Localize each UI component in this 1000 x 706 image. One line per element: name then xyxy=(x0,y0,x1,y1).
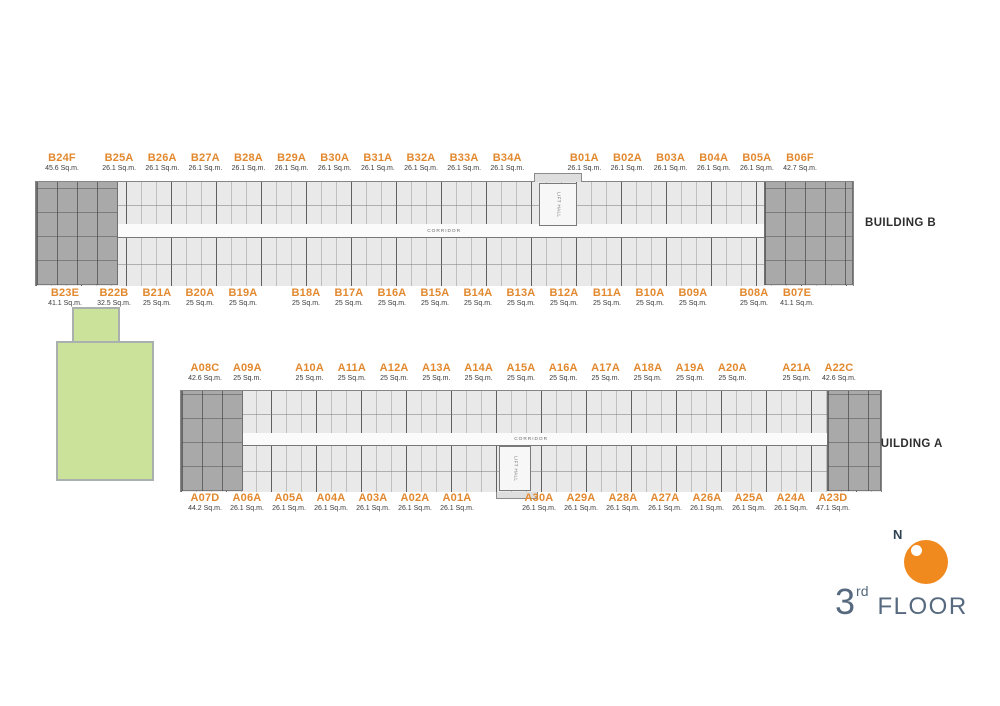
unit-label-B15A: B15A25 Sq.m. xyxy=(418,287,452,307)
unit-label-B11A: B11A25 Sq.m. xyxy=(590,287,624,307)
unit-label-B06F: B06F42.7 Sq.m. xyxy=(783,152,817,172)
unit-label-B34A: B34A26.1 Sq.m. xyxy=(490,152,524,172)
unit-label-A12A: A12A25 Sq.m. xyxy=(377,362,411,382)
unit-label-A16A: A16A25 Sq.m. xyxy=(546,362,580,382)
unit-name: A04A xyxy=(317,492,346,504)
unit-area: 32.5 Sq.m. xyxy=(97,300,131,307)
unit-name: A16A xyxy=(549,362,578,374)
unit-label-B02A: B02A26.1 Sq.m. xyxy=(611,152,645,172)
unit-name: B01A xyxy=(570,152,599,164)
unit-label-A02A: A02A26.1 Sq.m. xyxy=(398,492,432,512)
unit-area: 25 Sq.m. xyxy=(718,375,746,382)
unit-area: 42.6 Sq.m. xyxy=(822,375,856,382)
unit-name: B25A xyxy=(105,152,134,164)
unit-label-B26A: B26A26.1 Sq.m. xyxy=(145,152,179,172)
unit-name: A28A xyxy=(609,492,638,504)
unit-label-B21A: B21A25 Sq.m. xyxy=(140,287,174,307)
unit-area: 25 Sq.m. xyxy=(233,375,261,382)
unit-area: 25 Sq.m. xyxy=(507,300,535,307)
unit-name: B14A xyxy=(464,287,493,299)
unit-area: 26.1 Sq.m. xyxy=(564,505,598,512)
unit-area: 25 Sq.m. xyxy=(378,300,406,307)
unit-area: 42.7 Sq.m. xyxy=(783,165,817,172)
floor-ordinal: rd xyxy=(856,583,868,599)
unit-name: A03A xyxy=(359,492,388,504)
unit-name: B28A xyxy=(234,152,263,164)
unit-label-A18A: A18A25 Sq.m. xyxy=(631,362,665,382)
unit-name: B13A xyxy=(507,287,536,299)
unit-area: 26.1 Sq.m. xyxy=(314,505,348,512)
unit-label-A20A: A20A25 Sq.m. xyxy=(715,362,749,382)
unit-label-B13A: B13A25 Sq.m. xyxy=(504,287,538,307)
unit-label-B32A: B32A26.1 Sq.m. xyxy=(404,152,438,172)
unit-name: B22B xyxy=(100,287,129,299)
unit-area: 26.1 Sq.m. xyxy=(606,505,640,512)
unit-label-B09A: B09A25 Sq.m. xyxy=(676,287,710,307)
unit-name: B34A xyxy=(493,152,522,164)
unit-area: 25 Sq.m. xyxy=(464,300,492,307)
unit-label-A25A: A25A26.1 Sq.m. xyxy=(732,492,766,512)
building-b-lift-hall-label: LIFT HALL xyxy=(556,192,561,217)
building-b-corridor: CORRIDOR xyxy=(36,224,853,237)
unit-area: 25 Sq.m. xyxy=(335,300,363,307)
building-a-lift-hall: LIFT HALL xyxy=(499,446,531,491)
unit-area: 25 Sq.m. xyxy=(550,300,578,307)
building-b-name: BUILDING B xyxy=(865,217,936,229)
unit-area: 26.1 Sq.m. xyxy=(404,165,438,172)
building-b-upper-units-row xyxy=(36,182,853,225)
unit-label-B10A: B10A25 Sq.m. xyxy=(633,287,667,307)
unit-label-B16A: B16A25 Sq.m. xyxy=(375,287,409,307)
unit-label-B31A: B31A26.1 Sq.m. xyxy=(361,152,395,172)
unit-name: A25A xyxy=(735,492,764,504)
unit-area: 26.1 Sq.m. xyxy=(318,165,352,172)
unit-name: B04A xyxy=(699,152,728,164)
unit-area: 41.1 Sq.m. xyxy=(780,300,814,307)
unit-area: 26.1 Sq.m. xyxy=(611,165,645,172)
unit-area: 25 Sq.m. xyxy=(507,375,535,382)
building-b-left-endcap xyxy=(36,182,118,285)
unit-name: A02A xyxy=(401,492,430,504)
unit-name: B12A xyxy=(550,287,579,299)
unit-area: 26.1 Sq.m. xyxy=(490,165,524,172)
unit-area: 26.1 Sq.m. xyxy=(272,505,306,512)
unit-name: B31A xyxy=(363,152,392,164)
green-area-main-block xyxy=(56,341,154,481)
unit-area: 26.1 Sq.m. xyxy=(740,165,774,172)
unit-label-A23D: A23D47.1 Sq.m. xyxy=(816,492,850,512)
building-a-top-unit-labels: A08C42.6 Sq.m.A09A25 Sq.m.A10A25 Sq.m.A1… xyxy=(188,362,856,382)
unit-area: 25 Sq.m. xyxy=(740,300,768,307)
unit-area: 26.1 Sq.m. xyxy=(648,505,682,512)
unit-area: 47.1 Sq.m. xyxy=(816,505,850,512)
unit-area: 25 Sq.m. xyxy=(783,375,811,382)
unit-label-A03A: A03A26.1 Sq.m. xyxy=(356,492,390,512)
unit-label-A19A: A19A25 Sq.m. xyxy=(673,362,707,382)
unit-area: 25 Sq.m. xyxy=(636,300,664,307)
unit-area: 26.1 Sq.m. xyxy=(398,505,432,512)
unit-name: A07D xyxy=(191,492,220,504)
unit-label-A06A: A06A26.1 Sq.m. xyxy=(230,492,264,512)
unit-area: 25 Sq.m. xyxy=(421,300,449,307)
unit-area: 26.1 Sq.m. xyxy=(188,165,222,172)
unit-name: A20A xyxy=(718,362,747,374)
building-a-bottom-unit-labels: A07D44.2 Sq.m.A06A26.1 Sq.m.A05A26.1 Sq.… xyxy=(188,492,850,512)
unit-area: 25 Sq.m. xyxy=(186,300,214,307)
unit-name: A05A xyxy=(275,492,304,504)
unit-name: B08A xyxy=(740,287,769,299)
unit-area: 25 Sq.m. xyxy=(422,375,450,382)
unit-name: A17A xyxy=(591,362,620,374)
floor-plan-canvas: B24F45.6 Sq.m.B25A26.1 Sq.m.B26A26.1 Sq.… xyxy=(0,0,1000,706)
unit-label-A15A: A15A25 Sq.m. xyxy=(504,362,538,382)
floor-title: 3rdFLOOR xyxy=(835,583,968,621)
unit-name: A22C xyxy=(824,362,853,374)
unit-label-B20A: B20A25 Sq.m. xyxy=(183,287,217,307)
unit-area: 42.6 Sq.m. xyxy=(188,375,222,382)
unit-label-B24F: B24F45.6 Sq.m. xyxy=(45,152,79,172)
unit-area: 26.1 Sq.m. xyxy=(356,505,390,512)
unit-label-B28A: B28A26.1 Sq.m. xyxy=(232,152,266,172)
unit-name: A10A xyxy=(295,362,324,374)
unit-label-B25A: B25A26.1 Sq.m. xyxy=(102,152,136,172)
unit-area: 26.1 Sq.m. xyxy=(654,165,688,172)
unit-label-A13A: A13A25 Sq.m. xyxy=(419,362,453,382)
unit-label-B08A: B08A25 Sq.m. xyxy=(737,287,771,307)
building-a-upper-units-row xyxy=(181,391,881,434)
unit-label-A28A: A28A26.1 Sq.m. xyxy=(606,492,640,512)
unit-name: A06A xyxy=(233,492,262,504)
unit-name: B30A xyxy=(320,152,349,164)
building-a-corridor-label: CORRIDOR xyxy=(514,437,548,442)
unit-label-B07E: B07E41.1 Sq.m. xyxy=(780,287,814,307)
building-a-name: BUILDING A xyxy=(872,438,943,450)
unit-label-A30A: A30A26.1 Sq.m. xyxy=(522,492,556,512)
unit-area: 26.1 Sq.m. xyxy=(690,505,724,512)
unit-name: B10A xyxy=(636,287,665,299)
unit-name: A19A xyxy=(676,362,705,374)
unit-area: 26.1 Sq.m. xyxy=(232,165,266,172)
unit-label-B19A: B19A25 Sq.m. xyxy=(226,287,260,307)
unit-label-B18A: B18A25 Sq.m. xyxy=(289,287,323,307)
unit-name: B29A xyxy=(277,152,306,164)
unit-name: B02A xyxy=(613,152,642,164)
unit-area: 25 Sq.m. xyxy=(229,300,257,307)
unit-label-A11A: A11A25 Sq.m. xyxy=(335,362,369,382)
unit-name: A11A xyxy=(338,362,366,374)
unit-name: A29A xyxy=(567,492,596,504)
building-a-corridor: CORRIDOR xyxy=(181,433,881,445)
unit-label-B12A: B12A25 Sq.m. xyxy=(547,287,581,307)
building-b-lift-hall: LIFT HALL xyxy=(539,183,577,226)
unit-name: A27A xyxy=(651,492,680,504)
unit-name: B20A xyxy=(186,287,215,299)
unit-name: A08C xyxy=(191,362,220,374)
unit-name: B06F xyxy=(786,152,814,164)
unit-name: A18A xyxy=(633,362,662,374)
unit-name: A09A xyxy=(233,362,262,374)
unit-name: B17A xyxy=(335,287,364,299)
unit-name: B18A xyxy=(292,287,321,299)
unit-area: 41.1 Sq.m. xyxy=(48,300,82,307)
unit-name: A21A xyxy=(782,362,811,374)
unit-name: A23D xyxy=(819,492,848,504)
unit-label-B01A: B01A26.1 Sq.m. xyxy=(567,152,601,172)
unit-area: 25 Sq.m. xyxy=(143,300,171,307)
unit-name: B16A xyxy=(378,287,407,299)
unit-label-A01A: A01A26.1 Sq.m. xyxy=(440,492,474,512)
unit-label-A29A: A29A26.1 Sq.m. xyxy=(564,492,598,512)
unit-label-B29A: B29A26.1 Sq.m. xyxy=(275,152,309,172)
unit-label-A24A: A24A26.1 Sq.m. xyxy=(774,492,808,512)
unit-name: A14A xyxy=(464,362,493,374)
unit-label-A10A: A10A25 Sq.m. xyxy=(293,362,327,382)
unit-label-A07D: A07D44.2 Sq.m. xyxy=(188,492,222,512)
unit-area: 25 Sq.m. xyxy=(465,375,493,382)
unit-name: A12A xyxy=(380,362,409,374)
unit-area: 25 Sq.m. xyxy=(296,375,324,382)
unit-name: A15A xyxy=(507,362,536,374)
unit-area: 25 Sq.m. xyxy=(292,300,320,307)
unit-area: 26.1 Sq.m. xyxy=(102,165,136,172)
unit-name: A01A xyxy=(443,492,472,504)
building-a-right-endcap xyxy=(827,391,881,491)
building-b-bottom-unit-labels: B23E41.1 Sq.m.B22B32.5 Sq.m.B21A25 Sq.m.… xyxy=(48,287,814,307)
floor-number: 3 xyxy=(835,581,855,622)
unit-label-B04A: B04A26.1 Sq.m. xyxy=(697,152,731,172)
unit-label-A27A: A27A26.1 Sq.m. xyxy=(648,492,682,512)
unit-name: B09A xyxy=(679,287,708,299)
unit-name: B27A xyxy=(191,152,220,164)
building-b-lower-units-row xyxy=(36,237,853,286)
green-area-upper-block xyxy=(72,307,120,343)
unit-label-B27A: B27A26.1 Sq.m. xyxy=(188,152,222,172)
building-a-left-endcap xyxy=(181,391,243,491)
unit-name: B15A xyxy=(421,287,450,299)
building-b-right-endcap xyxy=(764,182,853,285)
unit-area: 26.1 Sq.m. xyxy=(440,505,474,512)
floor-word: FLOOR xyxy=(877,593,967,620)
unit-label-B05A: B05A26.1 Sq.m. xyxy=(740,152,774,172)
unit-area: 25 Sq.m. xyxy=(593,300,621,307)
unit-label-A09A: A09A25 Sq.m. xyxy=(230,362,264,382)
compass-highlight-dot xyxy=(911,545,922,556)
unit-area: 26.1 Sq.m. xyxy=(567,165,601,172)
unit-area: 25 Sq.m. xyxy=(380,375,408,382)
unit-name: B19A xyxy=(229,287,258,299)
north-label: N xyxy=(893,527,902,542)
unit-area: 26.1 Sq.m. xyxy=(447,165,481,172)
unit-area: 26.1 Sq.m. xyxy=(774,505,808,512)
unit-label-B22B: B22B32.5 Sq.m. xyxy=(97,287,131,307)
unit-name: B24F xyxy=(48,152,76,164)
north-compass-icon xyxy=(904,540,948,584)
unit-label-B30A: B30A26.1 Sq.m. xyxy=(318,152,352,172)
unit-area: 26.1 Sq.m. xyxy=(522,505,556,512)
unit-area: 44.2 Sq.m. xyxy=(188,505,222,512)
unit-name: A30A xyxy=(525,492,554,504)
unit-area: 25 Sq.m. xyxy=(634,375,662,382)
building-a-floorplan: CORRIDOR LIFT HALL xyxy=(180,390,882,492)
unit-name: B21A xyxy=(143,287,172,299)
building-b-top-unit-labels: B24F45.6 Sq.m.B25A26.1 Sq.m.B26A26.1 Sq.… xyxy=(45,152,817,172)
unit-label-A05A: A05A26.1 Sq.m. xyxy=(272,492,306,512)
unit-area: 26.1 Sq.m. xyxy=(145,165,179,172)
unit-label-B33A: B33A26.1 Sq.m. xyxy=(447,152,481,172)
unit-label-B23E: B23E41.1 Sq.m. xyxy=(48,287,82,307)
unit-label-A22C: A22C42.6 Sq.m. xyxy=(822,362,856,382)
unit-name: B11A xyxy=(593,287,621,299)
unit-label-B17A: B17A25 Sq.m. xyxy=(332,287,366,307)
building-b-corridor-label: CORRIDOR xyxy=(428,228,462,233)
unit-name: A13A xyxy=(422,362,451,374)
unit-name: B32A xyxy=(407,152,436,164)
unit-area: 26.1 Sq.m. xyxy=(275,165,309,172)
unit-area: 25 Sq.m. xyxy=(338,375,366,382)
unit-area: 25 Sq.m. xyxy=(679,300,707,307)
unit-name: B23E xyxy=(51,287,79,299)
unit-area: 26.1 Sq.m. xyxy=(697,165,731,172)
unit-area: 45.6 Sq.m. xyxy=(45,165,79,172)
unit-label-A14A: A14A25 Sq.m. xyxy=(462,362,496,382)
unit-name: B03A xyxy=(656,152,685,164)
unit-name: A26A xyxy=(693,492,722,504)
unit-area: 25 Sq.m. xyxy=(549,375,577,382)
unit-label-B03A: B03A26.1 Sq.m. xyxy=(654,152,688,172)
unit-label-A17A: A17A25 Sq.m. xyxy=(589,362,623,382)
unit-name: B07E xyxy=(783,287,811,299)
unit-label-B14A: B14A25 Sq.m. xyxy=(461,287,495,307)
unit-area: 25 Sq.m. xyxy=(676,375,704,382)
unit-name: B05A xyxy=(742,152,771,164)
building-a-lift-hall-label: LIFT HALL xyxy=(513,456,518,481)
unit-area: 26.1 Sq.m. xyxy=(361,165,395,172)
unit-label-A21A: A21A25 Sq.m. xyxy=(780,362,814,382)
building-a-lower-units-row xyxy=(181,445,881,492)
unit-area: 26.1 Sq.m. xyxy=(230,505,264,512)
unit-label-A26A: A26A26.1 Sq.m. xyxy=(690,492,724,512)
unit-area: 26.1 Sq.m. xyxy=(732,505,766,512)
unit-label-A04A: A04A26.1 Sq.m. xyxy=(314,492,348,512)
unit-label-A08C: A08C42.6 Sq.m. xyxy=(188,362,222,382)
unit-area: 25 Sq.m. xyxy=(592,375,620,382)
unit-name: B26A xyxy=(148,152,177,164)
building-b-floorplan: CORRIDOR LIFT HALL xyxy=(35,181,854,286)
unit-name: B33A xyxy=(450,152,479,164)
unit-name: A24A xyxy=(777,492,806,504)
